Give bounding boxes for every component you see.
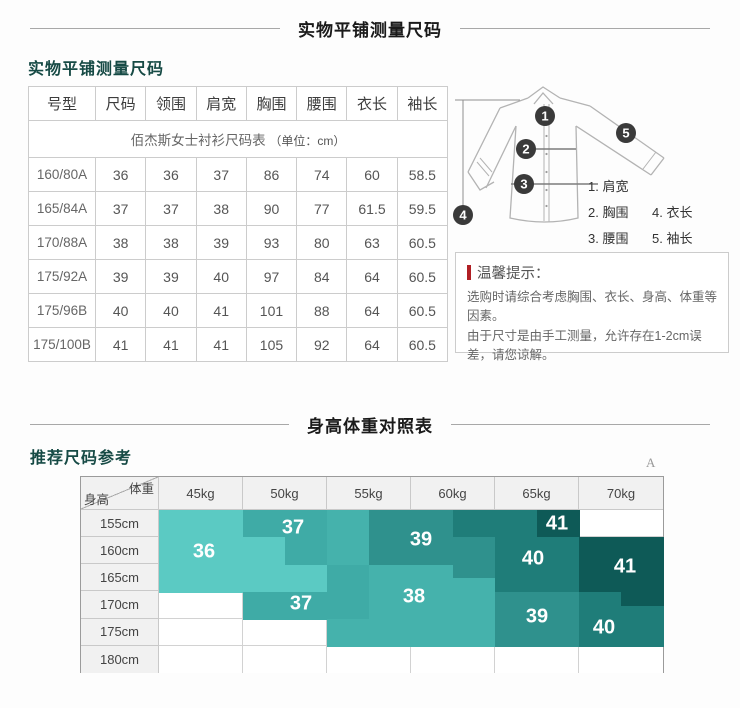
size-table-cell: 37: [196, 158, 246, 192]
badge-sleeve: 5: [622, 126, 629, 141]
size-table-cell: 64: [347, 294, 397, 328]
tips-line-2: 由于尺寸是由手工测量，允许存在1-2cm误差，请您谅解。: [467, 327, 717, 366]
size-table-cell: 64: [347, 328, 397, 362]
size-table-body: 160/80A36363786746058.5165/84A3737389077…: [29, 158, 448, 362]
size-table-cell: 93: [246, 226, 296, 260]
heat-band-cell: [621, 619, 664, 633]
heat-band-cell: [159, 510, 202, 524]
heat-band-cell: [495, 633, 538, 647]
heat-band-cell: [327, 537, 370, 551]
heat-band-cell: [621, 592, 664, 606]
size-table-cell: 39: [96, 260, 146, 294]
size-table: 佰杰斯女士衬衫尺码表 （单位：cm） 号型尺码领围肩宽胸围腰围衣长袖长 160/…: [28, 86, 448, 362]
size-label: 41: [546, 513, 568, 536]
heat-band-cell: [327, 565, 370, 579]
weight-header: 45kg: [159, 477, 243, 510]
heat-band-cell: [411, 619, 454, 633]
divider-line: [451, 424, 710, 425]
heat-band-cell: [537, 578, 580, 592]
heat-band-cell: [411, 551, 454, 565]
heat-band-cell: [369, 510, 412, 524]
weight-header: 60kg: [411, 477, 495, 510]
heat-band-cell: [201, 510, 244, 524]
corner-label-height: 身高: [84, 489, 109, 508]
height-header: 165cm: [81, 564, 159, 591]
heat-band-cell: [243, 606, 286, 620]
size-table-cell: 175/96B: [29, 294, 96, 328]
corner-label-weight: 体重: [129, 478, 154, 497]
heat-band-cell: [327, 606, 370, 620]
size-table-cell: 41: [196, 294, 246, 328]
heat-band-cell: [453, 592, 496, 606]
heat-band-cell: [243, 565, 286, 579]
size-table-cell: 61.5: [347, 192, 397, 226]
size-label: 39: [410, 529, 432, 552]
size-table-cell: 105: [246, 328, 296, 362]
heat-band-cell: [243, 537, 286, 551]
size-table-cell: 38: [146, 226, 196, 260]
tips-title-row: 温馨提示：: [467, 262, 717, 283]
size-table-cell: 74: [297, 158, 347, 192]
height-header: 170cm: [81, 591, 159, 618]
size-column-header: 衣长: [347, 87, 397, 121]
heat-band-cell: [201, 565, 244, 579]
top-divider-title: 实物平铺测量尺码: [298, 16, 442, 41]
height-header: 160cm: [81, 537, 159, 564]
heat-band-cell: [495, 592, 538, 606]
legend-waist: 3. 腰围: [588, 228, 652, 247]
weight-header: 55kg: [327, 477, 411, 510]
size-column-header: 腰围: [297, 87, 347, 121]
top-divider: 实物平铺测量尺码: [0, 16, 740, 40]
size-guide-page: 实物平铺测量尺码 实物平铺测量尺码 佰杰斯女士衬衫尺码表 （单位：cm） 号型尺…: [0, 0, 740, 708]
size-table-cell: 41: [96, 328, 146, 362]
heat-band-cell: [369, 551, 412, 565]
badge-shoulder: 1: [541, 109, 548, 124]
size-table-header-row: 号型尺码领围肩宽胸围腰围衣长袖长: [29, 87, 448, 121]
size-table-cell: 40: [96, 294, 146, 328]
divider-line: [460, 28, 710, 29]
heat-band-cell: [327, 510, 370, 524]
heat-band-cell: [537, 633, 580, 647]
heat-band-cell: [159, 578, 202, 592]
heat-band-cell: [411, 510, 454, 524]
tips-line-1: 选购时请综合考虑胸围、衣长、身高、体重等因素。: [467, 288, 717, 327]
heat-band-cell: [453, 606, 496, 620]
height-header: 155cm: [81, 510, 159, 537]
heat-band-cell: [369, 537, 412, 551]
size-table-cell: 60: [347, 158, 397, 192]
size-label: 37: [282, 517, 304, 540]
weight-header: 70kg: [579, 477, 663, 510]
size-column-header: 号型: [29, 87, 96, 121]
heat-band-cell: [327, 578, 370, 592]
size-table-cell: 90: [246, 192, 296, 226]
legend-shoulder: 1. 肩宽: [588, 176, 652, 195]
size-table-cell: 39: [196, 226, 246, 260]
section1-heading: 实物平铺测量尺码: [28, 55, 164, 79]
size-table-cell: 84: [297, 260, 347, 294]
legend-chest: 2. 胸围: [588, 202, 652, 221]
heat-band-cell: [495, 510, 538, 524]
diagram-legend: 1. 肩宽 2. 胸围 4. 衣长 3. 腰围 5. 袖长: [588, 176, 738, 254]
size-table-cell: 60.5: [397, 260, 447, 294]
size-table-row: 175/92A39394097846460.5: [29, 260, 448, 294]
tips-title: 温馨提示：: [477, 262, 550, 283]
heat-band-cell: [159, 565, 202, 579]
size-table-cell: 175/92A: [29, 260, 96, 294]
heat-band-cell: [579, 537, 622, 551]
size-table-cell: 80: [297, 226, 347, 260]
size-label: 36: [193, 541, 215, 564]
size-label: 41: [614, 556, 636, 579]
section2-heading: 推荐尺码参考: [30, 444, 132, 468]
size-table-cell: 36: [96, 158, 146, 192]
heat-band-cell: [327, 524, 370, 538]
legend-length: 4. 衣长: [652, 202, 716, 221]
badge-length: 4: [459, 208, 467, 223]
badge-chest: 2: [522, 142, 529, 157]
heat-corner-cell: 体重 身高: [81, 477, 159, 510]
size-table-unit: （单位：cm）: [269, 134, 345, 148]
heat-band-cell: [243, 592, 286, 606]
size-column-header: 肩宽: [196, 87, 246, 121]
size-table-cell: 37: [146, 192, 196, 226]
tips-box: 温馨提示： 选购时请综合考虑胸围、衣长、身高、体重等因素。 由于尺寸是由手工测量…: [455, 252, 729, 353]
size-column-header: 领围: [146, 87, 196, 121]
heat-band-cell: [201, 524, 244, 538]
bottom-divider: 身高体重对照表: [0, 412, 740, 436]
size-table-title-body: 佰杰斯女士衬衫尺码表 （单位：cm）: [29, 121, 448, 158]
heat-band-cell: [537, 592, 580, 606]
height-header: 180cm: [81, 646, 159, 673]
size-table-cell: 41: [196, 328, 246, 362]
heat-band-cell: [453, 578, 496, 592]
size-table-cell: 101: [246, 294, 296, 328]
size-column-header: 胸围: [246, 87, 296, 121]
size-table-row: 160/80A36363786746058.5: [29, 158, 448, 192]
size-table-row: 175/100B414141105926460.5: [29, 328, 448, 362]
heat-band-cell: [285, 578, 328, 592]
size-table-cell: 60.5: [397, 294, 447, 328]
heat-band-cell: [621, 606, 664, 620]
heat-band-cell: [453, 524, 496, 538]
size-table-cell: 86: [246, 158, 296, 192]
height-header: 175cm: [81, 619, 159, 646]
heat-band-cell: [243, 578, 286, 592]
size-column-header: 尺码: [96, 87, 146, 121]
weight-header: 50kg: [243, 477, 327, 510]
size-table-cell: 58.5: [397, 158, 447, 192]
heat-band-cell: [453, 633, 496, 647]
heat-band-cell: [327, 619, 370, 633]
heat-band-cell: [369, 524, 412, 538]
size-table-cell: 60.5: [397, 226, 447, 260]
size-table-cell: 165/84A: [29, 192, 96, 226]
divider-line: [30, 424, 289, 425]
heat-band-cell: [621, 633, 664, 647]
size-table-cell: 170/88A: [29, 226, 96, 260]
heat-band-cell: [327, 592, 370, 606]
heat-band-cell: [327, 633, 370, 647]
heat-band-cell: [369, 633, 412, 647]
heat-band-cell: [369, 619, 412, 633]
heat-header-row: 体重 身高 45kg50kg55kg60kg65kg70kg: [81, 477, 663, 510]
heat-band-cell: [327, 551, 370, 565]
heat-band-cell: [621, 537, 664, 551]
heat-band-cell: [411, 633, 454, 647]
size-table-row: 175/96B404041101886460.5: [29, 294, 448, 328]
size-table-cell: 160/80A: [29, 158, 96, 192]
legend-sleeve: 5. 袖长: [652, 228, 716, 247]
size-label: 40: [522, 548, 544, 571]
heat-band-cell: [621, 578, 664, 592]
heat-band-cell: [243, 551, 286, 565]
red-bar-icon: [467, 265, 471, 280]
bottom-divider-title: 身高体重对照表: [307, 412, 433, 437]
size-table-cell: 97: [246, 260, 296, 294]
heat-band-cell: [369, 565, 412, 579]
size-table-cell: 64: [347, 260, 397, 294]
size-table-cell: 77: [297, 192, 347, 226]
size-table-cell: 88: [297, 294, 347, 328]
size-table-cell: 41: [146, 328, 196, 362]
size-table-title: 佰杰斯女士衬衫尺码表 （单位：cm）: [29, 121, 448, 158]
size-label: 37: [290, 593, 312, 616]
heat-band-cell: [453, 551, 496, 565]
heat-band-cell: [579, 592, 622, 606]
heat-overlay: 36373941404137383940: [159, 510, 663, 674]
heat-band-cell: [285, 551, 328, 565]
heat-band-cell: [453, 537, 496, 551]
size-table-cell: 39: [146, 260, 196, 294]
weight-header: 65kg: [495, 477, 579, 510]
heat-band-cell: [201, 578, 244, 592]
size-table-cell: 175/100B: [29, 328, 96, 362]
size-table-cell: 63: [347, 226, 397, 260]
heat-band-cell: [285, 565, 328, 579]
size-table-title-text: 佰杰斯女士衬衫尺码表: [131, 133, 266, 148]
size-table-row: 165/84A373738907761.559.5: [29, 192, 448, 226]
size-label: 38: [403, 586, 425, 609]
heat-band-cell: [495, 524, 538, 538]
size-table-cell: 60.5: [397, 328, 447, 362]
size-table-cell: 38: [196, 192, 246, 226]
size-table-cell: 59.5: [397, 192, 447, 226]
corner-mark: A: [646, 455, 655, 471]
heat-band-cell: [453, 619, 496, 633]
size-table-cell: 40: [196, 260, 246, 294]
size-table-cell: 38: [96, 226, 146, 260]
heat-band-cell: [453, 510, 496, 524]
size-table-cell: 37: [96, 192, 146, 226]
size-label: 39: [526, 606, 548, 629]
heat-band-cell: [453, 565, 496, 579]
size-table-cell: 92: [297, 328, 347, 362]
heat-band-cell: [411, 565, 454, 579]
size-label: 40: [593, 617, 615, 640]
size-table-cell: 36: [146, 158, 196, 192]
size-column-header: 袖长: [397, 87, 447, 121]
heat-band-cell: [495, 578, 538, 592]
size-table-row: 170/88A38383993806360.5: [29, 226, 448, 260]
heat-band-cell: [243, 524, 286, 538]
badge-waist: 3: [520, 177, 527, 192]
heat-band-cell: [243, 510, 286, 524]
heat-band-cell: [579, 578, 622, 592]
divider-line: [30, 28, 280, 29]
size-table-cell: 40: [146, 294, 196, 328]
heat-band-cell: [159, 524, 202, 538]
size-recommendation-heatmap: 体重 身高 45kg50kg55kg60kg65kg70kg 155cm160c…: [80, 476, 664, 673]
